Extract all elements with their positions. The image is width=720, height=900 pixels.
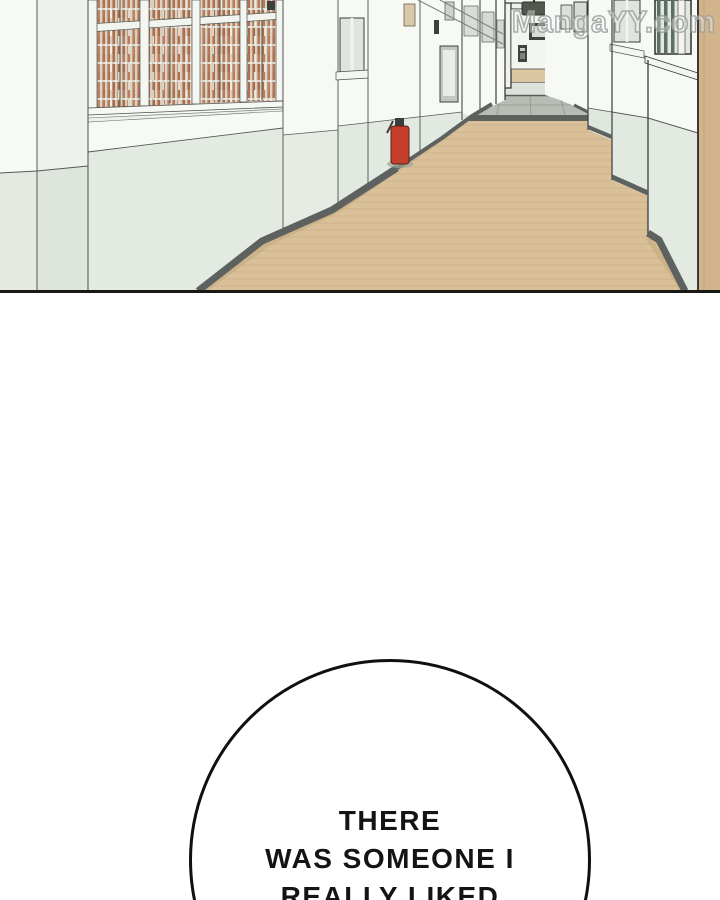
- hallway-scene: MangaYY.com: [0, 0, 720, 293]
- bubble-text-line: REALLY LIKED: [192, 878, 588, 900]
- foreground-wood-door: [698, 0, 720, 293]
- transom-window: [336, 18, 368, 80]
- bubble-text-line: THERE: [192, 802, 588, 840]
- window-latch: [267, 1, 275, 10]
- speech-bubble: THERE WAS SOMEONE I REALLY LIKED: [189, 659, 591, 900]
- display-case: [440, 46, 458, 102]
- panel-border-bottom: [0, 290, 720, 293]
- door-name-plate: [404, 4, 415, 26]
- hallway-windows: [88, 0, 283, 122]
- bubble-text-line: WAS SOMEONE I: [192, 840, 588, 878]
- foreground-left-pillar: [0, 0, 88, 293]
- door-latch: [434, 20, 439, 34]
- watermark-text: MangaYY.com: [512, 4, 716, 39]
- comic-panel-page: MangaYY.com THERE WAS SOMEONE I REALLY L…: [0, 0, 720, 900]
